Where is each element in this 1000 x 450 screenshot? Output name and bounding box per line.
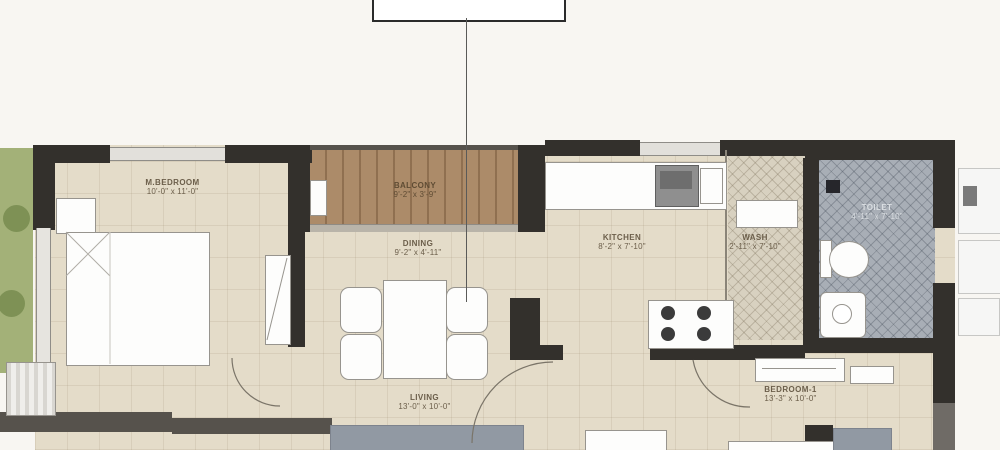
room-label-bedroom-1: BEDROOM-1 13'-3" x 10'-0" [718, 385, 863, 403]
wall [545, 140, 640, 156]
room-label-m-bedroom: M.BEDROOM 10'-0" x 11'-0" [100, 178, 245, 196]
wall [933, 140, 955, 228]
dresser-line [762, 368, 836, 369]
room-dims: 13'-3" x 10'-0" [718, 394, 863, 403]
wall [933, 403, 955, 450]
wall [805, 338, 955, 353]
door-leaf [265, 255, 291, 345]
room-dims: 4'-11" x 7'-10" [822, 212, 932, 221]
room-dims: 8'-2" x 7'-10" [552, 242, 692, 251]
washing-machine [736, 200, 798, 228]
dining-table [383, 280, 447, 379]
garden-strip [0, 148, 33, 373]
room-name: KITCHEN [552, 233, 692, 242]
leader-line [466, 18, 467, 302]
room-dims: 13'-0" x 10'-0" [352, 402, 497, 411]
burner-icon [661, 327, 675, 341]
callout-box [372, 0, 566, 22]
room-label-toilet: TOILET 4'-11" x 7'-10" [822, 203, 932, 221]
appliance-inner [660, 171, 692, 189]
chair [340, 334, 382, 380]
room-dims: 9'-2" x 3'-9" [345, 190, 485, 199]
balcony-sill [310, 224, 518, 232]
room-name: BALCONY [345, 181, 485, 190]
room-dims: 10'-0" x 11'-0" [100, 187, 245, 196]
room-label-dining: DINING 9'-2" x 4'-11" [348, 239, 488, 257]
wc-bowl [829, 241, 869, 278]
wall [172, 418, 332, 434]
wall [805, 140, 935, 160]
nightstand [56, 198, 96, 234]
burner-icon [661, 306, 675, 320]
floor-drain [826, 180, 840, 193]
balcony-rail [310, 145, 520, 150]
wall [55, 145, 110, 163]
room-name: DINING [348, 239, 488, 248]
room-name: WASH [700, 233, 810, 242]
basin-bowl-icon [832, 304, 852, 324]
dresser [755, 358, 845, 382]
wall [518, 345, 563, 360]
wall [720, 140, 805, 156]
room-label-living: LIVING 13'-0" x 10'-0" [352, 393, 497, 411]
ac-unit [310, 180, 327, 216]
room-name: LIVING [352, 393, 497, 402]
room-label-wash: WASH 2'-11" x 7'-10" [700, 233, 810, 251]
kitchen-sink [700, 168, 723, 204]
window [640, 142, 720, 156]
side-table [850, 366, 894, 384]
wardrobe-partial [833, 428, 892, 450]
room-label-kitchen: KITCHEN 8'-2" x 7'-10" [552, 233, 692, 251]
adjacent-unit-outline [958, 240, 1000, 294]
window [110, 147, 225, 161]
burner-icon [697, 327, 711, 341]
wardrobe [6, 362, 56, 416]
room-dims: 2'-11" x 7'-10" [700, 242, 810, 251]
stove [648, 300, 734, 349]
bush-icon [3, 205, 30, 232]
window [36, 228, 51, 364]
bed [66, 232, 210, 366]
room-dims: 9'-2" x 4'-11" [348, 248, 488, 257]
chair [340, 287, 382, 333]
adjacent-unit-outline [958, 298, 1000, 336]
burner-icon [697, 306, 711, 320]
room-name: BEDROOM-1 [718, 385, 863, 394]
chair [446, 334, 488, 380]
room-label-balcony: BALCONY 9'-2" x 3'-9" [345, 181, 485, 199]
adjacent-unit-fixture [963, 186, 977, 206]
fixture-partial [585, 430, 667, 450]
floor-plan: M.BEDROOM 10'-0" x 11'-0" BALCONY 9'-2" … [0, 0, 1000, 450]
room-name: TOILET [822, 203, 932, 212]
wall [33, 145, 55, 230]
bed-partial [330, 425, 524, 450]
wall [518, 145, 545, 232]
chair [446, 287, 488, 333]
room-name: M.BEDROOM [100, 178, 245, 187]
wall [803, 158, 819, 345]
